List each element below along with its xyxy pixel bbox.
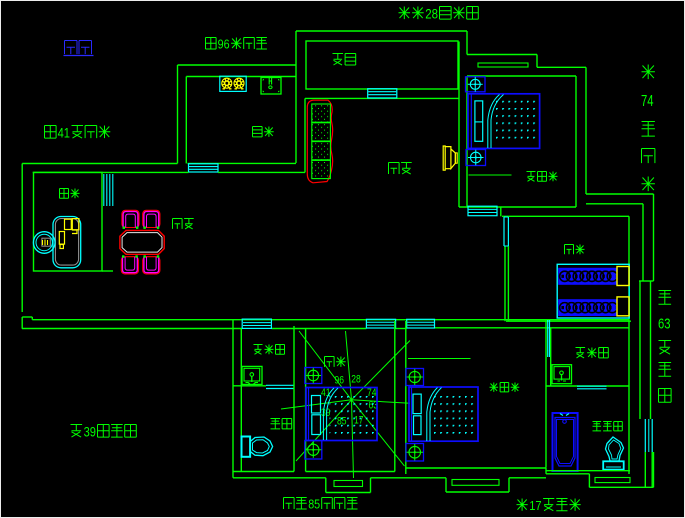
svg-text:17: 17	[529, 498, 541, 513]
svg-text:63: 63	[658, 317, 671, 333]
svg-text:41: 41	[321, 387, 331, 399]
svg-text:28: 28	[425, 6, 438, 21]
svg-text:74: 74	[641, 93, 654, 110]
svg-text:96: 96	[335, 374, 345, 386]
svg-text:96: 96	[218, 37, 230, 51]
svg-text:39: 39	[84, 424, 96, 439]
svg-text:28: 28	[351, 374, 361, 386]
svg-text:41: 41	[58, 125, 70, 140]
svg-text:85: 85	[308, 497, 320, 511]
svg-text:39: 39	[321, 407, 331, 419]
